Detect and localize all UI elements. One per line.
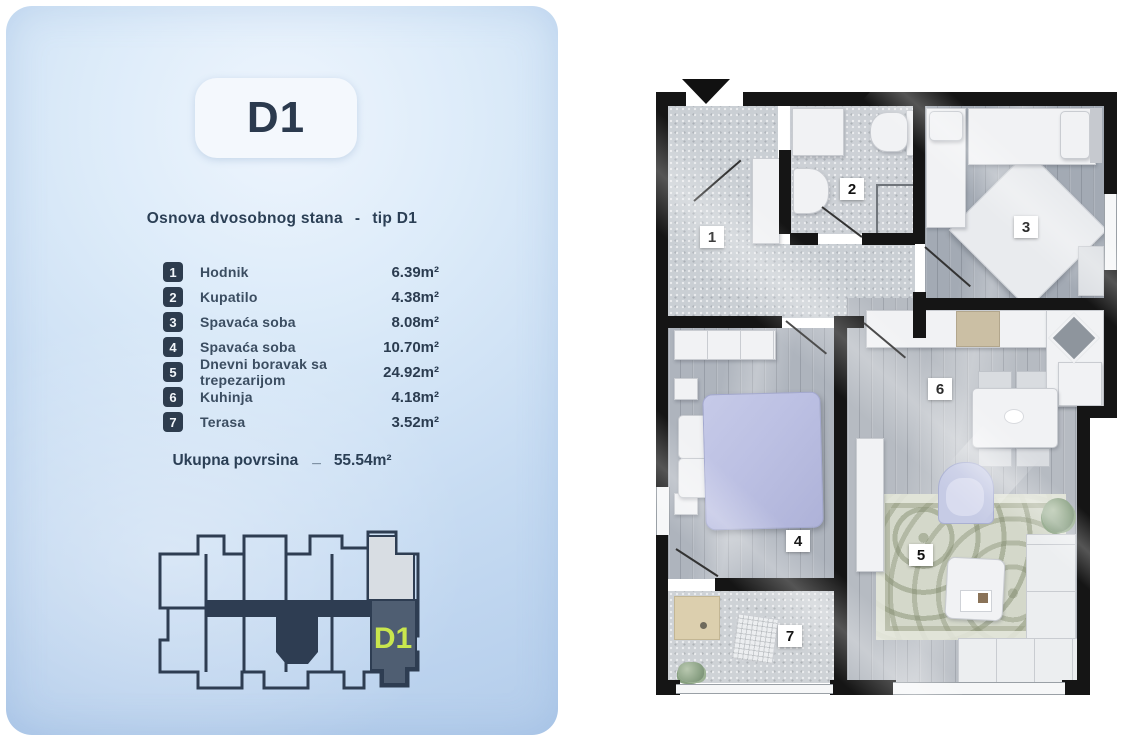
window	[893, 682, 1065, 695]
wall	[834, 316, 847, 695]
wall	[779, 150, 791, 234]
room-area: 24.92m²	[383, 364, 439, 381]
washing-machine	[792, 108, 844, 156]
plan-label-4: 4	[786, 530, 810, 552]
room-number-badge: 4	[163, 337, 183, 357]
wardrobe	[674, 330, 776, 360]
plan-label-1: 1	[700, 226, 724, 248]
room-area: 4.18m²	[391, 389, 439, 406]
unit-badge-label: D1	[247, 93, 305, 143]
room-row-spavaca-2: 4 Spavaća soba 10.70m²	[163, 337, 439, 357]
room-row-spavaca-1: 3 Spavaća soba 8.08m²	[163, 312, 439, 332]
room-area: 8.08m²	[391, 314, 439, 331]
room-area: 6.39m²	[391, 264, 439, 281]
room-name: Hodnik	[200, 264, 249, 280]
pillow	[1060, 111, 1090, 159]
plan-label-3: 3	[1014, 216, 1038, 238]
room-area: 10.70m²	[383, 339, 439, 356]
room-name: Terasa	[200, 414, 245, 430]
info-card: D1 Osnova dvosobnog stana - tip D1 1 Hod…	[6, 6, 558, 735]
nightstand	[1078, 246, 1104, 296]
toilet	[870, 112, 908, 152]
stove	[956, 311, 1000, 347]
room-number-badge: 2	[163, 287, 183, 307]
terrace-table	[674, 596, 720, 640]
subtitle-dash: -	[355, 210, 360, 228]
room-name: Spavaća soba	[200, 314, 296, 330]
plan-label-2: 2	[840, 178, 864, 200]
room-row-kupatilo: 2 Kupatilo 4.38m²	[163, 287, 439, 307]
unit-badge: D1	[195, 78, 357, 158]
pillow	[929, 111, 963, 141]
room-area: 3.52m²	[391, 414, 439, 431]
room-row-kuhinja: 6 Kuhinja 4.18m²	[163, 387, 439, 407]
plan-label-text: 7	[786, 628, 794, 645]
room-number-badge: 6	[163, 387, 183, 407]
room-name: Dnevni boravak sa trepezarijom	[200, 356, 383, 388]
plate	[1004, 409, 1024, 424]
plan-label-7: 7	[778, 625, 802, 647]
plant	[1042, 498, 1074, 532]
room-area: 4.38m²	[391, 289, 439, 306]
window	[1104, 194, 1117, 270]
keyplan-unit-label: D1	[374, 622, 412, 655]
wall	[715, 578, 834, 591]
building-keyplan: D1	[146, 520, 436, 700]
room-number-badge: 3	[163, 312, 183, 332]
page: { "panel": { "badge_label": "D1", "subti…	[0, 0, 1146, 741]
room-row-dnevni: 5 Dnevni boravak sa trepezarijom 24.92m²	[163, 362, 439, 382]
fridge	[1058, 362, 1102, 406]
dining-chair	[1016, 448, 1050, 467]
total-area-separator: _	[312, 449, 320, 467]
plan-subtitle: Osnova dvosobnog stana - tip D1	[6, 210, 558, 228]
plan-label-text: 6	[936, 381, 944, 398]
keyplan-staircase	[276, 617, 318, 664]
window	[656, 487, 670, 535]
room-number-badge: 5	[163, 362, 183, 382]
bed-headboard	[1090, 108, 1102, 163]
total-area-label: Ukupna povrsina	[172, 452, 298, 470]
wall	[913, 104, 925, 244]
plan-label-6: 6	[928, 378, 952, 400]
wicker-chair	[731, 613, 779, 664]
wall	[915, 298, 1104, 310]
dining-chair	[978, 448, 1012, 467]
subtitle-right: tip D1	[372, 210, 417, 228]
wall	[862, 233, 915, 245]
nightstand	[674, 378, 698, 400]
hallway-closet	[752, 158, 780, 244]
wall	[1077, 406, 1090, 695]
entrance-arrow-icon	[682, 79, 730, 104]
plan-label-text: 4	[794, 533, 802, 550]
armchair-seat	[946, 478, 984, 516]
wall	[656, 316, 782, 328]
room-number-badge: 7	[163, 412, 183, 432]
keyplan-neighbor-unit	[368, 536, 414, 600]
total-area-value: 55.54m²	[334, 452, 392, 470]
room-number-badge: 1	[163, 262, 183, 282]
total-area-row: Ukupna povrsina _ 55.54m²	[6, 452, 558, 470]
tray-item	[978, 593, 988, 603]
room-row-hodnik: 1 Hodnik 6.39m²	[163, 262, 439, 282]
sofa-section-horizontal	[958, 638, 1078, 686]
tv-sideboard	[856, 438, 884, 572]
room-name: Spavaća soba	[200, 339, 296, 355]
room-name: Kupatilo	[200, 289, 258, 305]
room-list: 1 Hodnik 6.39m² 2 Kupatilo 4.38m² 3 Spav…	[163, 262, 439, 432]
table-item	[700, 622, 707, 629]
plan-label-text: 1	[708, 229, 716, 246]
plan-label-text: 2	[848, 181, 856, 198]
plant	[678, 662, 704, 682]
shower-enclosure	[876, 184, 916, 236]
plan-label-text: 3	[1022, 219, 1030, 236]
room-name: Kuhinja	[200, 389, 253, 405]
double-bed-duvet	[702, 391, 824, 530]
room-row-terasa: 7 Terasa 3.52m²	[163, 412, 439, 432]
wall	[656, 92, 668, 695]
keyplan-corridor	[206, 600, 371, 617]
wall	[790, 233, 818, 245]
plan-label-text: 5	[917, 547, 925, 564]
wall	[1062, 680, 1090, 695]
terrace-railing	[676, 684, 833, 694]
plan-label-5: 5	[909, 544, 933, 566]
wall	[743, 92, 1117, 106]
subtitle-left: Osnova dvosobnog stana	[147, 210, 343, 228]
